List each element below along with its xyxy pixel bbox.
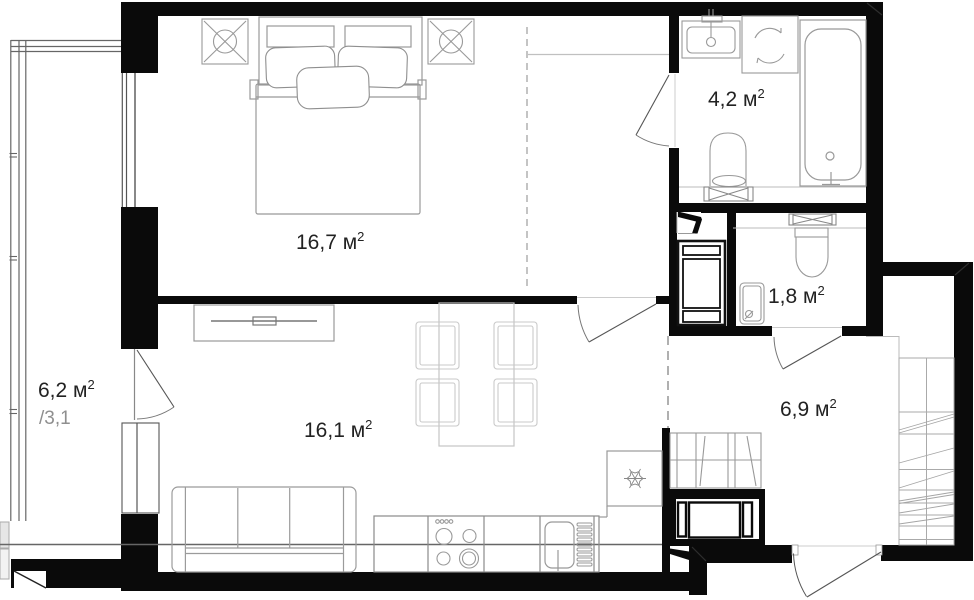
- svg-text:6,2 м2: 6,2 м2: [38, 377, 95, 402]
- svg-text:16,1 м2: 16,1 м2: [304, 417, 372, 442]
- svg-text:16,7 м2: 16,7 м2: [296, 229, 364, 254]
- svg-text:4,2 м2: 4,2 м2: [708, 86, 765, 111]
- svg-text:6,9 м2: 6,9 м2: [780, 396, 837, 421]
- svg-text:1,8 м2: 1,8 м2: [768, 283, 825, 308]
- svg-text:/3,1: /3,1: [39, 408, 71, 429]
